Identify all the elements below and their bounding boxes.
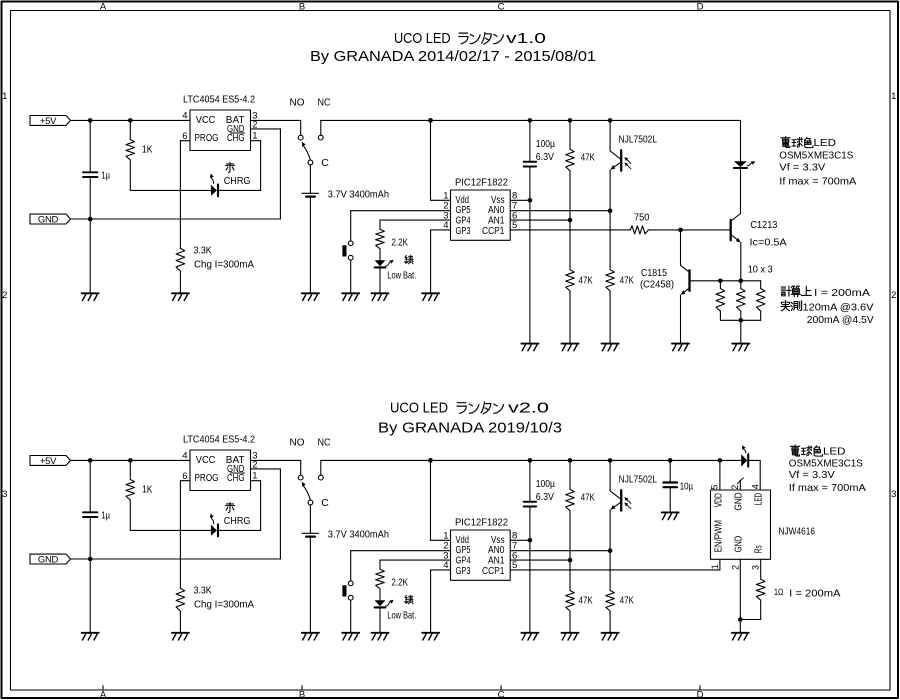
svg-text:47K: 47K — [581, 491, 595, 503]
svg-text:UCO LED: UCO LED — [394, 30, 451, 47]
svg-text:47K: 47K — [620, 275, 634, 287]
svg-text:Vf = 3.3V: Vf = 3.3V — [779, 161, 825, 173]
svg-text:CHG: CHG — [227, 133, 245, 144]
svg-text:LTC4054 ES5-4.2: LTC4054 ES5-4.2 — [183, 93, 255, 105]
svg-text:100µ: 100µ — [536, 478, 555, 490]
svg-text:NJW4616: NJW4616 — [779, 525, 816, 537]
svg-text:GP4: GP4 — [456, 216, 471, 227]
svg-text:LED: LED — [814, 137, 837, 149]
svg-text:47K: 47K — [581, 151, 595, 163]
svg-text:AN1: AN1 — [488, 216, 505, 227]
svg-text:1µ: 1µ — [101, 510, 110, 522]
svg-text:2: 2 — [2, 290, 7, 301]
svg-text:Chg I=300mA: Chg I=300mA — [194, 259, 254, 271]
svg-text:1: 1 — [252, 130, 257, 141]
svg-text:GND: GND — [38, 555, 59, 566]
svg-text:Vf = 3.3V: Vf = 3.3V — [789, 469, 835, 481]
svg-text:I = 200mA: I = 200mA — [789, 588, 840, 600]
svg-text:If max = 700mA: If max = 700mA — [789, 482, 866, 494]
svg-text:3.3K: 3.3K — [194, 244, 212, 256]
svg-text:GP3: GP3 — [456, 566, 471, 577]
svg-text:NO: NO — [290, 437, 305, 449]
svg-text:D: D — [697, 689, 704, 700]
svg-text:B: B — [299, 1, 305, 12]
svg-text:10 x 3: 10 x 3 — [748, 264, 773, 276]
svg-text:GND: GND — [734, 492, 745, 510]
svg-text:GP4: GP4 — [456, 556, 471, 567]
svg-text:A: A — [100, 1, 107, 12]
svg-text:CHRG: CHRG — [224, 175, 251, 187]
svg-text:GND: GND — [38, 215, 59, 226]
svg-text:OSM5XME3C1S: OSM5XME3C1S — [779, 149, 853, 161]
svg-text:GP3: GP3 — [456, 226, 471, 237]
svg-text:NC: NC — [318, 437, 331, 449]
svg-text:VDD: VDD — [713, 493, 724, 507]
svg-text:C: C — [498, 689, 505, 700]
svg-text:+5V: +5V — [40, 456, 57, 467]
svg-text:120mA @3.6V: 120mA @3.6V — [803, 301, 874, 313]
svg-text:1K: 1K — [142, 483, 153, 495]
svg-text:10µ: 10µ — [680, 480, 693, 492]
svg-text:47K: 47K — [579, 275, 593, 287]
svg-text:750: 750 — [634, 211, 650, 223]
svg-text:1Ω: 1Ω — [774, 587, 783, 598]
svg-text:Low Bat.: Low Bat. — [387, 269, 416, 281]
svg-text:GP5: GP5 — [456, 205, 471, 216]
svg-text:1: 1 — [891, 91, 896, 102]
svg-text:+5V: +5V — [40, 116, 57, 127]
svg-text:C1213: C1213 — [750, 219, 777, 231]
svg-text:1: 1 — [2, 91, 7, 102]
svg-text:200mA @4.5V: 200mA @4.5V — [807, 314, 874, 326]
svg-text:(C2458): (C2458) — [640, 279, 674, 291]
svg-text:Vdd: Vdd — [456, 195, 470, 206]
svg-text:AN0: AN0 — [488, 205, 505, 216]
svg-text:GND: GND — [734, 536, 745, 553]
svg-text:Vdd: Vdd — [456, 535, 470, 546]
svg-text:2: 2 — [730, 565, 740, 570]
svg-text:Vss: Vss — [491, 535, 505, 546]
svg-text:C: C — [321, 157, 329, 169]
svg-text:100µ: 100µ — [536, 138, 555, 150]
svg-text:LED: LED — [754, 493, 765, 505]
svg-text:3: 3 — [751, 565, 761, 570]
svg-text:VCC: VCC — [196, 115, 216, 126]
svg-text:3: 3 — [2, 489, 7, 500]
svg-text:Chg I=300mA: Chg I=300mA — [194, 599, 254, 611]
svg-text:3.7V 3400mAh: 3.7V 3400mAh — [328, 188, 389, 200]
svg-text:I = 200mA: I = 200mA — [814, 287, 870, 299]
svg-text:2: 2 — [730, 485, 740, 490]
svg-text:LTC4054 ES5-4.2: LTC4054 ES5-4.2 — [183, 433, 255, 445]
svg-text:NC: NC — [318, 97, 331, 109]
svg-text:v1.0: v1.0 — [506, 30, 546, 47]
svg-text:PIC12F1822: PIC12F1822 — [455, 516, 508, 528]
svg-text:B: B — [299, 689, 305, 700]
svg-text:VCC: VCC — [196, 455, 216, 466]
svg-text:NJL7502L: NJL7502L — [619, 134, 658, 146]
svg-text:2.2K: 2.2K — [391, 236, 408, 248]
svg-text:5: 5 — [710, 485, 720, 490]
svg-text:6.3V: 6.3V — [536, 151, 554, 163]
svg-text:3.7V 3400mAh: 3.7V 3400mAh — [328, 528, 389, 540]
svg-text:UCO LED: UCO LED — [390, 399, 448, 416]
svg-text:v2.0: v2.0 — [508, 399, 549, 416]
svg-text:4: 4 — [182, 451, 187, 462]
svg-text:AN1: AN1 — [488, 556, 505, 567]
svg-text:Low Bat.: Low Bat. — [387, 609, 416, 621]
svg-text:1µ: 1µ — [101, 170, 110, 182]
svg-text:GP5: GP5 — [456, 545, 471, 556]
svg-text:By GRANADA 2019/10/3: By GRANADA 2019/10/3 — [378, 419, 562, 436]
svg-text:Rs: Rs — [754, 545, 765, 553]
svg-text:2: 2 — [891, 290, 896, 301]
svg-text:D: D — [697, 1, 704, 12]
svg-text:1K: 1K — [142, 143, 153, 155]
svg-text:1: 1 — [710, 564, 720, 569]
svg-text:6.3V: 6.3V — [536, 491, 554, 503]
svg-text:3.3K: 3.3K — [194, 584, 212, 596]
svg-text:EN/PWM: EN/PWM — [713, 520, 724, 552]
svg-text:CHG: CHG — [227, 473, 245, 484]
svg-text:47K: 47K — [579, 594, 593, 606]
svg-text:If max = 700mA: If max = 700mA — [779, 176, 856, 188]
svg-text:2.2K: 2.2K — [391, 576, 408, 588]
svg-text:47K: 47K — [620, 594, 634, 606]
svg-text:LED: LED — [823, 445, 846, 457]
svg-text:PROG: PROG — [195, 473, 219, 484]
svg-text:4: 4 — [182, 111, 187, 122]
svg-text:CCP1: CCP1 — [482, 226, 505, 237]
svg-text:C: C — [321, 497, 329, 509]
svg-text:CCP1: CCP1 — [482, 566, 505, 577]
svg-text:PROG: PROG — [195, 133, 219, 144]
svg-text:NO: NO — [290, 97, 305, 109]
svg-text:3: 3 — [891, 489, 896, 500]
svg-text:AN0: AN0 — [488, 545, 505, 556]
svg-text:1: 1 — [252, 470, 257, 481]
svg-text:PIC12F1822: PIC12F1822 — [455, 176, 508, 188]
svg-text:Ic=0.5A: Ic=0.5A — [750, 237, 787, 249]
svg-text:C1815: C1815 — [641, 267, 667, 279]
svg-text:C: C — [498, 1, 505, 12]
svg-text:NJL7502L: NJL7502L — [619, 474, 658, 486]
svg-text:4: 4 — [750, 484, 760, 489]
svg-text:OSM5XME3C1S: OSM5XME3C1S — [789, 457, 863, 469]
svg-text:By GRANADA 2014/02/17 - 2015/0: By GRANADA 2014/02/17 - 2015/08/01 — [310, 48, 596, 65]
svg-text:CHRG: CHRG — [224, 515, 251, 527]
svg-text:Vss: Vss — [491, 195, 505, 206]
svg-text:A: A — [100, 689, 107, 700]
